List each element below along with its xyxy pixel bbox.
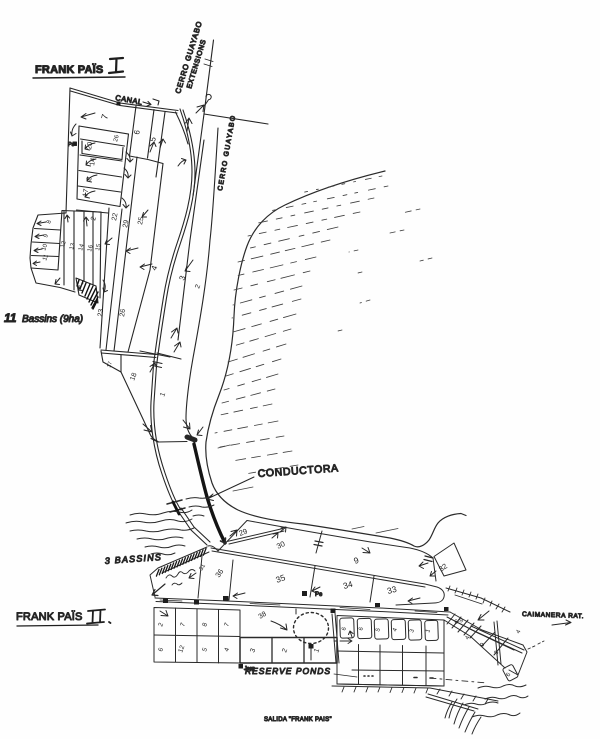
svg-text:22: 22	[111, 212, 119, 221]
svg-text:10: 10	[41, 243, 49, 252]
svg-text:Pe: Pe	[315, 592, 323, 598]
svg-text:4: 4	[149, 264, 159, 272]
svg-text:11: 11	[4, 311, 17, 325]
svg-text:8: 8	[46, 219, 53, 225]
svg-text:35: 35	[274, 572, 287, 585]
svg-text:5: 5	[148, 136, 158, 143]
svg-text:3: 3	[409, 628, 416, 634]
svg-text:33: 33	[386, 584, 398, 596]
svg-text:26: 26	[113, 134, 121, 143]
svg-text:4: 4	[516, 629, 523, 635]
svg-text:3: 3	[249, 648, 257, 654]
svg-text:32: 32	[437, 561, 449, 573]
svg-text:2: 2	[157, 622, 165, 628]
svg-text:7: 7	[179, 622, 187, 628]
svg-text:7: 7	[223, 622, 231, 628]
svg-text:31: 31	[199, 563, 208, 572]
svg-text:6: 6	[341, 626, 348, 632]
svg-text:16: 16	[87, 244, 95, 253]
svg-text:9: 9	[43, 233, 50, 239]
svg-text:2: 2	[194, 284, 202, 290]
svg-text:36: 36	[213, 567, 225, 579]
svg-text:FRANK PAÏS: FRANK PAÏS	[16, 611, 83, 623]
svg-text:20: 20	[86, 141, 94, 150]
svg-text:30: 30	[275, 539, 286, 551]
svg-text:RESERVE PONDS: RESERVE PONDS	[245, 666, 331, 676]
svg-text:1: 1	[425, 628, 432, 634]
svg-text:4: 4	[223, 647, 231, 653]
svg-text:34: 34	[342, 579, 354, 591]
svg-text:23: 23	[97, 308, 105, 317]
svg-text:15: 15	[95, 243, 103, 252]
svg-text:SALIDA "FRANK PAIS": SALIDA "FRANK PAIS"	[264, 717, 332, 723]
svg-text:CONDUCTORA: CONDUCTORA	[257, 462, 339, 480]
svg-text:25: 25	[137, 216, 145, 225]
svg-text:9: 9	[352, 555, 360, 566]
svg-text:12: 12	[177, 644, 186, 654]
svg-text:29: 29	[238, 527, 249, 538]
svg-text:12: 12	[60, 240, 68, 249]
svg-text:8: 8	[201, 622, 209, 628]
svg-text:4: 4	[392, 627, 399, 633]
svg-text:7: 7	[99, 113, 110, 120]
svg-text:FRANK PAÏS: FRANK PAÏS	[35, 63, 103, 76]
svg-text:13: 13	[69, 242, 77, 251]
svg-text:26: 26	[119, 308, 127, 317]
svg-text:6: 6	[157, 647, 165, 653]
svg-text:14: 14	[89, 157, 97, 166]
svg-text:38: 38	[258, 611, 268, 621]
svg-text:29: 29	[122, 219, 130, 228]
svg-text:2: 2	[90, 216, 98, 222]
svg-text:11: 11	[42, 253, 50, 262]
svg-text:5: 5	[375, 627, 382, 633]
svg-text:18: 18	[129, 372, 138, 382]
svg-text:6: 6	[132, 129, 142, 136]
svg-text:17: 17	[82, 188, 90, 197]
svg-text:CAIMANERA RAT.: CAIMANERA RAT.	[522, 611, 584, 620]
svg-text:Bassins (9ha): Bassins (9ha)	[22, 314, 83, 325]
svg-text:6: 6	[358, 626, 365, 632]
svg-text:CERRO GUAYABO: CERRO GUAYABO	[217, 114, 237, 191]
svg-text:4: 4	[465, 635, 472, 641]
svg-text:1: 1	[159, 392, 167, 398]
svg-text:8: 8	[86, 176, 94, 181]
svg-text:14: 14	[78, 243, 86, 252]
svg-text:2: 2	[281, 648, 289, 654]
svg-text:3 BASSINS: 3 BASSINS	[104, 552, 162, 566]
svg-text:1: 1	[313, 648, 321, 654]
svg-text:5: 5	[201, 647, 209, 653]
